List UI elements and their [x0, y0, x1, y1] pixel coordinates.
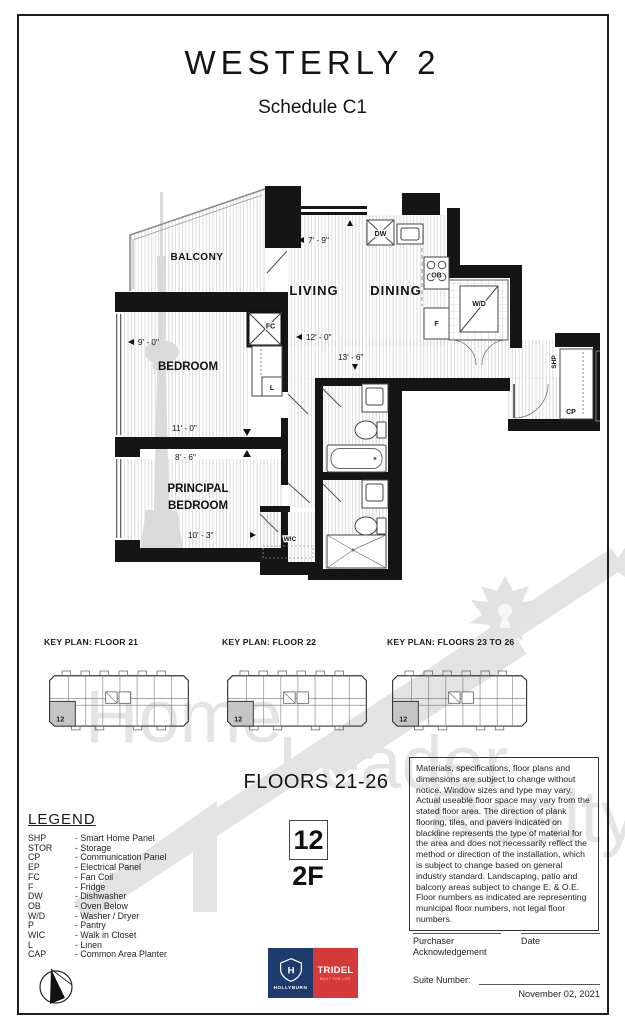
dim-hall: 13' - 6" — [338, 353, 363, 362]
north-arrow-icon — [30, 957, 82, 1013]
legend-item-shp: SHP- Smart Home Panel — [28, 834, 263, 844]
legend-title: LEGEND — [28, 811, 263, 828]
purchaser-label-line1: Purchaser — [413, 936, 501, 947]
legend-abbr: WIC — [28, 931, 75, 941]
fridge-label: F — [434, 321, 439, 328]
suite-number-label: Suite Number: — [413, 975, 471, 986]
legend-item-wd: W/D- Washer / Dryer — [28, 912, 263, 922]
legend-item-f: F- Fridge — [28, 883, 263, 893]
purchaser-signature-line[interactable] — [413, 933, 501, 934]
key-plan-drawing: 12 — [218, 652, 376, 747]
key-plan-floor-22: KEY PLAN: FLOOR 22 12 — [218, 637, 393, 752]
room-label-balcony: BALCONY — [171, 252, 224, 263]
document-date: November 02, 2021 — [413, 989, 600, 1000]
key-plan-title: KEY PLAN: FLOOR 22 — [222, 637, 393, 647]
suite-number-field[interactable]: Suite Number: — [413, 974, 600, 985]
communication-panel-label: CP — [566, 409, 576, 416]
signoff-block: Purchaser Acknowledgement Date Suite Num… — [413, 933, 600, 1000]
fan-coil-label: FC — [266, 324, 275, 331]
key-plan-drawing: 12 — [40, 652, 198, 747]
tridel-tagline: BUILT FOR LIFE — [320, 977, 351, 981]
hollyburn-wordmark: HOLLYBURN — [274, 985, 308, 990]
dim-living-width: 12' - 0" — [306, 333, 331, 342]
key-plan-floor-21: KEY PLAN: FLOOR 21 12 — [40, 637, 215, 752]
legend-item-fc: FC- Fan Coil — [28, 873, 263, 883]
suite-number-line[interactable] — [479, 974, 600, 985]
key-plan-floors-23-26: KEY PLAN: FLOORS 23 TO 26 12 — [383, 637, 558, 752]
unit-number: 12 — [293, 825, 323, 856]
legend-item-ep: EP- Electrical Panel — [28, 863, 263, 873]
unit-number-label: 12 — [56, 715, 64, 723]
disclaimer-text-box: Materials, specifications, floor plans a… — [409, 757, 599, 931]
legend-item-p: P- Pantry — [28, 921, 263, 931]
legend-abbr: W/D — [28, 912, 75, 922]
builder-logos: H HOLLYBURN TRIDEL BUILT FOR LIFE — [268, 948, 358, 998]
dishwasher-label: DW — [375, 231, 387, 238]
legend-desc: - Common Area Planter — [75, 950, 167, 960]
purchaser-label-line2: Acknowledgement — [413, 947, 501, 958]
dim-bedroom-width: 9' - 0" — [138, 338, 159, 347]
room-label-principal-line1: PRINCIPAL — [167, 483, 228, 495]
svg-text:H: H — [287, 965, 294, 976]
washer-dryer-label: W/D — [472, 301, 486, 308]
room-label-living: LIVING — [289, 283, 338, 298]
dim-bedroom-length: 11' - 0" — [172, 424, 197, 433]
date-label: Date — [521, 936, 600, 947]
key-plan-title: KEY PLAN: FLOOR 21 — [44, 637, 215, 647]
key-plan-drawing: 12 — [383, 652, 541, 747]
room-label-bedroom: BEDROOM — [158, 361, 218, 373]
linen-label: L — [270, 385, 275, 392]
oven-below-label: OB — [431, 273, 442, 280]
key-plan-title: KEY PLAN: FLOORS 23 TO 26 — [387, 637, 558, 647]
unit-floor-plan: 7' - 9" 9' - 0" 12' - 0" 13' - 6" 11' - … — [110, 178, 600, 605]
unit-number-label: 12 — [234, 715, 242, 723]
legend: LEGEND SHP- Smart Home Panel STOR- Stora… — [28, 811, 263, 960]
schedule-subtitle: Schedule C1 — [0, 97, 625, 119]
dim-principal-width: 8' - 6" — [175, 453, 196, 462]
room-label-principal-line2: BEDROOM — [168, 500, 228, 512]
unit-type-label: 2F — [268, 861, 348, 892]
hollyburn-shield-icon: H — [278, 957, 304, 983]
room-label-dining: DINING — [370, 283, 422, 298]
date-signature-line[interactable] — [521, 933, 600, 934]
purchaser-signature-field[interactable]: Purchaser Acknowledgement — [413, 933, 501, 957]
project-title: WESTERLY 2 — [0, 44, 625, 82]
walk-in-closet-label: WIC — [284, 536, 297, 543]
legend-item-ob: OB- Oven Below — [28, 902, 263, 912]
date-signature-field[interactable]: Date — [521, 933, 600, 957]
hollyburn-logo: H HOLLYBURN — [268, 948, 313, 998]
legend-item-cp: CP- Communication Panel — [28, 853, 263, 863]
unit-number-label: 12 — [399, 715, 407, 723]
smart-home-panel-label: SHP — [551, 355, 558, 369]
exterior-windows — [116, 314, 121, 538]
legend-item-dw: DW- Dishwasher — [28, 892, 263, 902]
dim-top: 7' - 9" — [308, 236, 329, 245]
legend-abbr: FC — [28, 873, 75, 883]
legend-item-wic: WIC- Walk in Closet — [28, 931, 263, 941]
unit-number-box: 12 — [289, 820, 328, 860]
tridel-wordmark: TRIDEL — [317, 965, 353, 976]
tridel-logo: TRIDEL BUILT FOR LIFE — [313, 948, 358, 998]
dim-principal-length: 10' - 3" — [188, 531, 213, 540]
floorplan-document-page: Home Leader Realty WESTERLY 2 Schedule C… — [0, 0, 625, 1030]
